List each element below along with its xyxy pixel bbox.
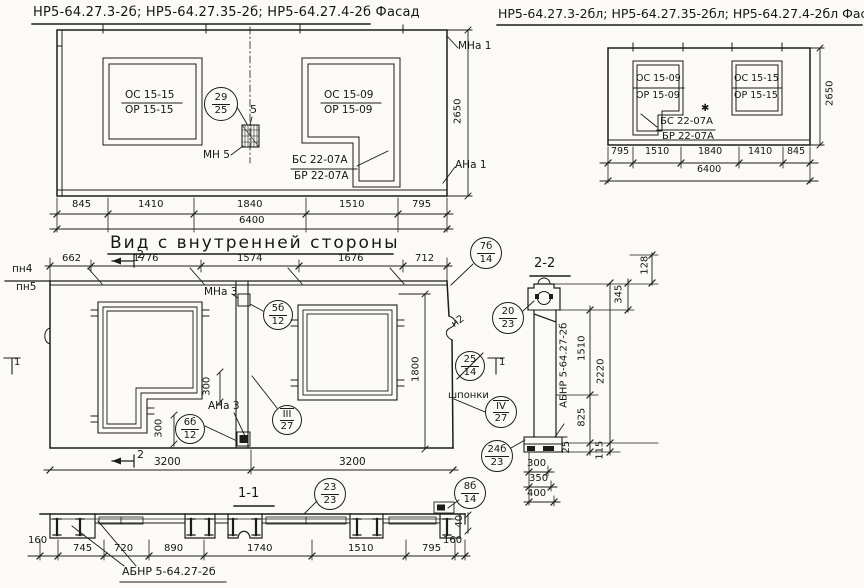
- dim-label: 825: [577, 408, 588, 427]
- dim-label: 400: [527, 489, 546, 500]
- dim-label: 795: [422, 544, 441, 555]
- callout-bottom: 12: [181, 430, 200, 441]
- dim-label: 795: [611, 147, 629, 157]
- dim-label: 40: [455, 515, 466, 528]
- callout-balloon-23-23: 23 23: [314, 478, 346, 510]
- dim-label-total: 6400: [697, 165, 721, 175]
- dim-label: 890: [164, 544, 183, 555]
- edge-mark-label: пн5: [16, 282, 36, 293]
- dim-label: 1574: [237, 254, 262, 265]
- facade-inner-title: НР5-64.27.3-2б; НР5-64.27.35-2б; НР5-64.…: [33, 6, 420, 20]
- callout-balloon-24b-23: 24б 23: [481, 440, 513, 472]
- dim-label: 1840: [698, 147, 722, 157]
- callout-top: IV: [493, 400, 509, 413]
- dim-label: 845: [787, 147, 805, 157]
- callout-bottom: 14: [461, 367, 480, 378]
- window-mark-label: ОС 15-15: [125, 90, 174, 101]
- section-cut-mark: 1: [499, 358, 505, 369]
- balcony-mark-label: БР 22-07А: [662, 132, 714, 143]
- callout-bottom: 27: [278, 421, 297, 432]
- callout-top: 24б: [485, 444, 510, 456]
- dim-label: 300: [202, 377, 213, 396]
- edge-mark-label: пн4: [12, 264, 32, 275]
- detail-mark-label: 5: [250, 104, 257, 116]
- dim-label: 1410: [748, 147, 772, 157]
- callout-balloon-8b-14: 8б 14: [454, 477, 486, 509]
- dim-label: 745: [73, 544, 92, 555]
- dim-label: 662: [62, 254, 81, 265]
- callout-balloon-29-25: 29 25: [204, 87, 238, 121]
- dim-label: 1510: [348, 544, 373, 555]
- dim-label: 300: [154, 419, 165, 438]
- callout-top: III: [280, 408, 295, 421]
- section-cut-mark: 2: [137, 449, 144, 461]
- callout-bottom: 14: [461, 494, 480, 505]
- inner-view-title: Вид с внутренней стороны: [110, 235, 400, 253]
- callout-top: 6б: [181, 417, 200, 429]
- dim-label: 845: [72, 200, 91, 211]
- section-1-1-title: 1-1: [238, 487, 259, 501]
- dim-label: 1410: [138, 200, 163, 211]
- balcony-mark-label: БС 22-07А: [660, 117, 713, 128]
- facade-outer-linework: [497, 25, 862, 184]
- dim-label: 712: [415, 254, 434, 265]
- window-mark-label: ОС 15-09: [636, 74, 681, 84]
- dim-label: 1840: [237, 200, 262, 211]
- dim-label-height: 2650: [825, 81, 836, 106]
- dim-label: 1510: [577, 336, 588, 361]
- callout-top: 23: [321, 482, 340, 494]
- window-mark-label: ОР 15-15: [734, 91, 778, 101]
- callout-top: 5б: [269, 303, 288, 315]
- dim-label: 345: [614, 285, 625, 304]
- dim-label: 25: [562, 441, 573, 454]
- callout-bottom: 14: [477, 254, 496, 265]
- callout-balloon-iv-27: IV 27: [485, 396, 517, 428]
- dim-label: 160: [443, 536, 462, 547]
- callout-balloon-5b-12: 5б 12: [263, 300, 293, 330]
- anchor-mark-label: МН 5: [203, 150, 230, 161]
- dim-label: 3200: [339, 457, 366, 468]
- anchor-mark-label: АНа 3: [208, 401, 240, 412]
- dim-label: 115: [595, 441, 606, 460]
- dim-label: 350: [529, 474, 548, 485]
- callout-bottom: 27: [492, 413, 511, 424]
- callout-balloon-20-23: 20 23: [492, 302, 524, 334]
- callout-top: 25: [461, 354, 480, 366]
- window-mark-label: ОС 15-09: [324, 90, 373, 101]
- dim-label: 160: [28, 536, 47, 547]
- section-1-1-linework: [28, 502, 471, 582]
- dim-label: 300: [527, 459, 546, 470]
- balcony-mark-label: БС 22-07А: [292, 155, 348, 166]
- anchor-mark-label: АНа 1: [455, 160, 487, 171]
- callout-balloon-6b-12: 6б 12: [175, 414, 205, 444]
- callout-bottom: 25: [212, 105, 231, 116]
- dim-label-height: 2650: [453, 99, 464, 124]
- window-mark-label: ОС 15-15: [734, 74, 779, 84]
- anchor-mark-label: МНа 1: [458, 41, 491, 52]
- callout-bottom: 12: [269, 316, 288, 327]
- blueprint-sheet: НР5-64.27.3-2б; НР5-64.27.35-2б; НР5-64.…: [0, 0, 864, 588]
- callout-bottom: 23: [488, 457, 507, 468]
- callout-bottom: 23: [499, 319, 518, 330]
- dim-label: 2220: [596, 359, 607, 384]
- dim-label: 1510: [339, 200, 364, 211]
- callout-top: 8б: [461, 481, 480, 493]
- callout-top: 7б: [477, 241, 496, 253]
- anchor-mark-label: МНа 3: [204, 287, 237, 298]
- dim-label: 1676: [338, 254, 363, 265]
- section-cut-mark: 2: [137, 249, 144, 261]
- product-mark-label: АБНР 5-64.27-2б: [559, 323, 570, 408]
- balcony-mark-label: БР 22-07А: [294, 171, 349, 182]
- dim-label-total: 6400: [239, 216, 264, 227]
- callout-top: 29: [212, 92, 231, 104]
- window-mark-label: ОР 15-15: [125, 105, 173, 116]
- inner-view-linework: [4, 254, 534, 514]
- callout-balloon-25-14: 25 14: [455, 351, 485, 381]
- facade-outer-title: НР5-64.27.3-2бл; НР5-64.27.35-2бл; НР5-6…: [498, 7, 864, 20]
- dim-label: 1800: [411, 357, 422, 382]
- section-2-2-title: 2-2: [534, 257, 555, 271]
- callout-bottom: 23: [321, 495, 340, 506]
- asterisk-mark: ✱: [701, 104, 709, 115]
- keyway-label: шпонки: [448, 391, 489, 402]
- window-mark-label: ОР 15-09: [324, 105, 372, 116]
- dim-label: 1510: [645, 147, 669, 157]
- dim-label: 720: [114, 544, 133, 555]
- callout-top: 20: [499, 306, 518, 318]
- callout-balloon-7b-14: 7б 14: [470, 237, 502, 269]
- window-mark-label: ОР 15-09: [636, 91, 680, 101]
- dim-label: 3200: [154, 457, 181, 468]
- dim-label: 1740: [247, 544, 272, 555]
- callout-balloon-iii-27: III 27: [272, 405, 302, 435]
- dim-label: 128: [640, 256, 651, 275]
- section-cut-mark: 1: [14, 358, 20, 369]
- product-mark-label: АБНР 5-64.27-2б: [122, 566, 216, 578]
- dim-label: 795: [412, 200, 431, 211]
